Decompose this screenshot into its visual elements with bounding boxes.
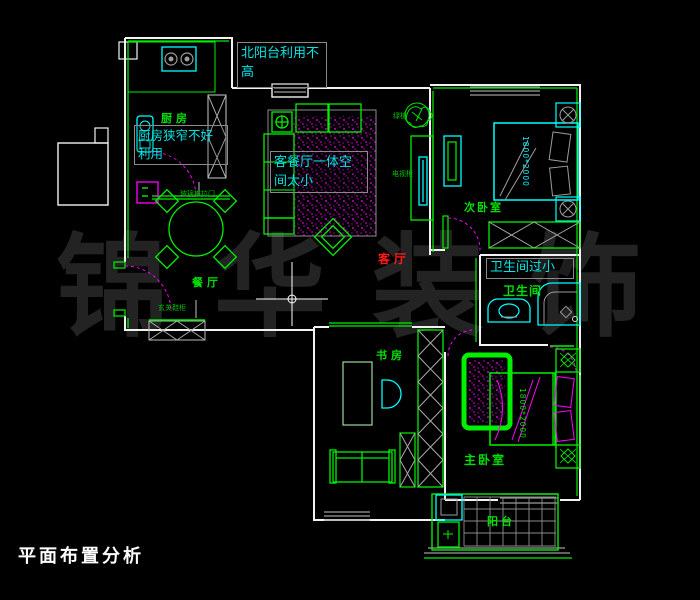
label-kitchen-door: 玻璃推拉门 [180, 189, 215, 199]
note-kitchen: 厨房狭窄不好利用 [134, 125, 228, 165]
ucs-crosshair-marker [256, 262, 328, 326]
note-north-balcony: 北阳台利用不高 [237, 42, 327, 88]
room-label-kitchen: 厨房 [161, 110, 191, 126]
dining-chair [214, 246, 237, 269]
desk [343, 362, 372, 425]
master-window [577, 375, 580, 445]
note-bathroom: 卫生间过小 [486, 258, 574, 279]
dining-chair [156, 246, 179, 269]
dining-chair [214, 190, 237, 213]
room-label-dining: 餐厅 [192, 274, 222, 290]
bathroom-door-swing [550, 347, 576, 371]
dining-chair [156, 190, 179, 213]
secondary-wardrobe-x [489, 222, 580, 248]
study-wardrobe-x [400, 330, 443, 487]
secondary-bed-dimension: 1800*2000 [521, 136, 530, 187]
room-label-secondary-bedroom: 次卧室 [464, 199, 503, 215]
desk-chair [382, 380, 401, 408]
note-living: 客餐厅一体空间太小 [270, 151, 368, 193]
master-door-swing [448, 330, 474, 356]
label-tv-cabinet: 电视柜 [392, 169, 413, 179]
dining-table [169, 202, 223, 256]
page-title: 平面布置分析 [18, 542, 144, 568]
dining-furniture [149, 190, 236, 340]
tv [419, 157, 427, 205]
study-sliding-door [329, 323, 412, 326]
room-label-master-bedroom: 主卧室 [464, 451, 506, 468]
label-plant: 绿植 [393, 111, 407, 121]
secondary-bedroom-furniture [443, 103, 580, 248]
stove [162, 47, 196, 71]
entry-door-leaf [114, 262, 125, 268]
secondary-door-leaf [443, 216, 448, 248]
label-entry-cabinet: 玄关鞋柜 [158, 303, 186, 313]
dresser [444, 136, 461, 186]
room-label-living: 客厅 [378, 250, 410, 267]
study-sofa [330, 450, 395, 483]
master-bed-dimension: 1800*2000 [518, 388, 527, 439]
secondary-door-swing [448, 218, 480, 250]
room-label-bathroom: 卫生间 [503, 282, 542, 299]
room-label-balcony: 阳台 [487, 513, 515, 529]
plant [405, 103, 432, 127]
floorplan-drawing [0, 0, 700, 600]
room-label-study: 书房 [376, 347, 406, 363]
floorplan-canvas[interactable]: 锦华装饰 [0, 0, 700, 600]
fridge [137, 182, 158, 203]
